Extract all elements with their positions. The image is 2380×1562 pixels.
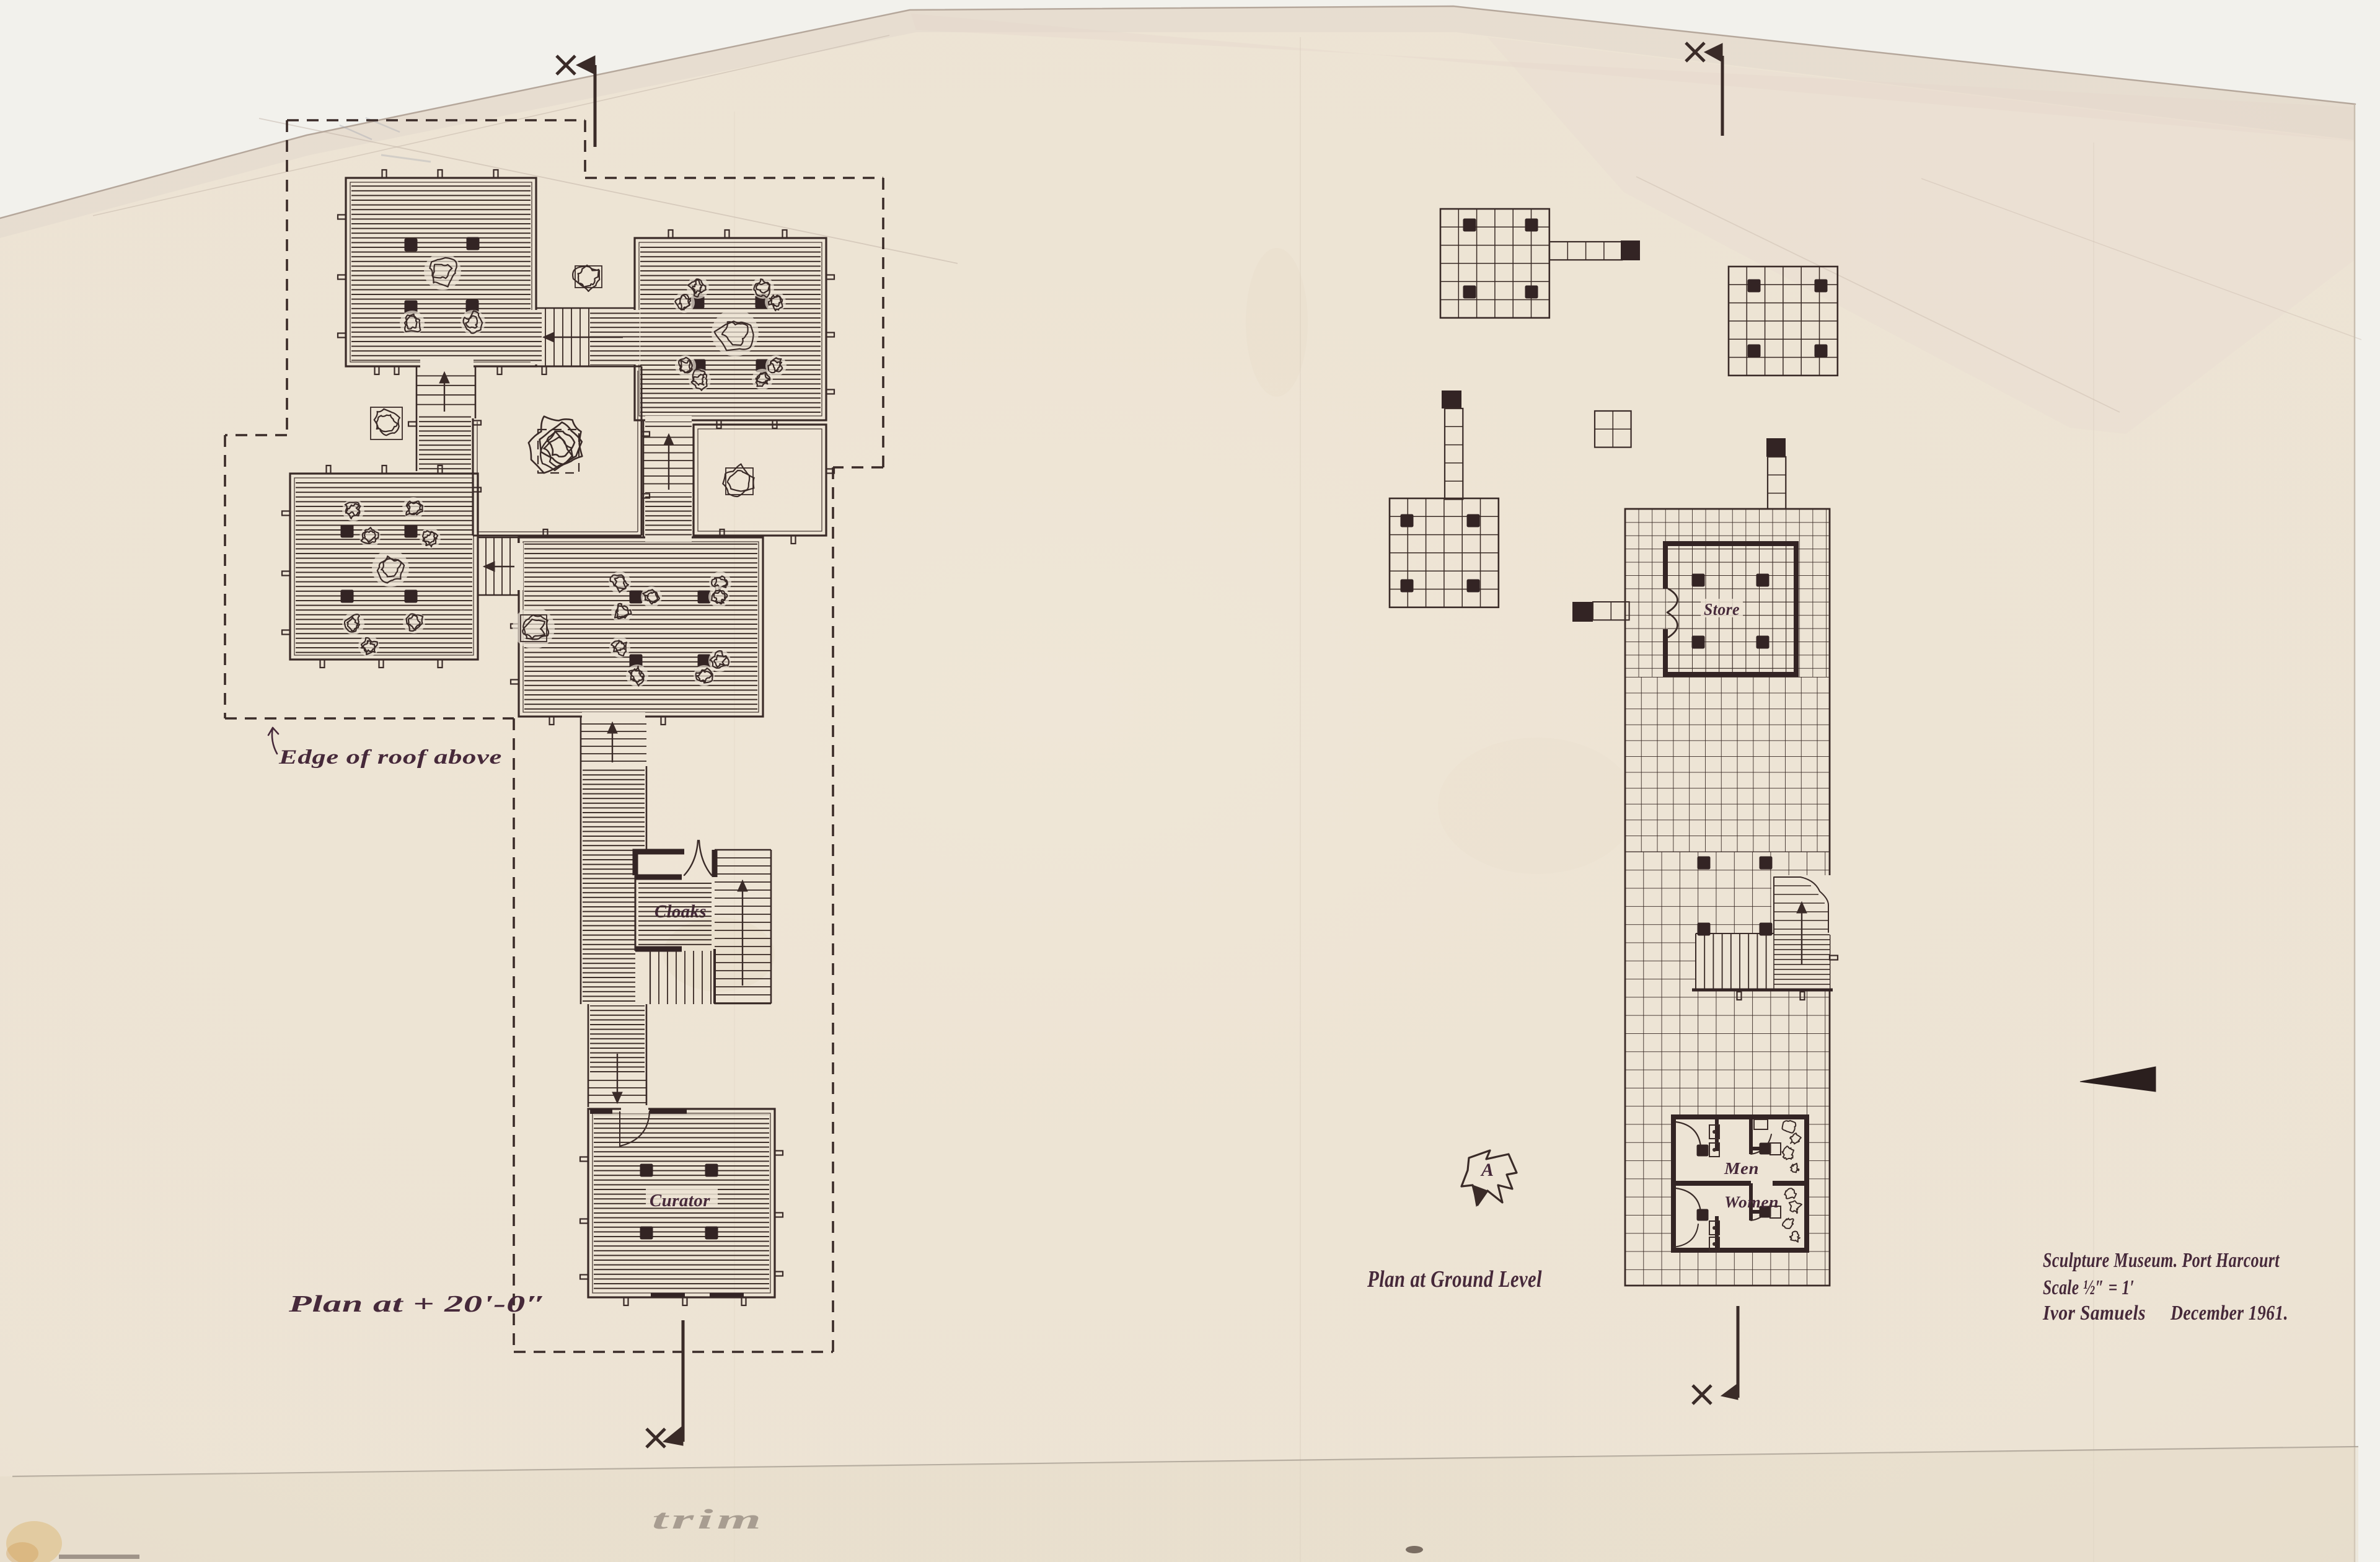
svg-text:Curator: Curator <box>650 1191 710 1211</box>
svg-text:December 1961.: December 1961. <box>2170 1302 2288 1325</box>
svg-text:Women: Women <box>1724 1193 1779 1211</box>
svg-text:Scale ½″ = 1′: Scale ½″ = 1′ <box>2043 1276 2135 1299</box>
svg-text:Plan at Ground Level: Plan at Ground Level <box>1367 1266 1542 1292</box>
svg-text:Ivor Samuels: Ivor Samuels <box>2042 1302 2146 1325</box>
svg-text:Sculpture Museum. Port Harcou: Sculpture Museum. Port Harcourt <box>2043 1249 2280 1272</box>
svg-text:trim: trim <box>652 1503 765 1535</box>
svg-text:A: A <box>1480 1160 1494 1180</box>
svg-text:Store: Store <box>1704 600 1740 619</box>
svg-text:Plan at + 20'-0″: Plan at + 20'-0″ <box>288 1291 547 1317</box>
svg-text:Edge of roof above: Edge of roof above <box>278 746 502 769</box>
svg-text:Men: Men <box>1724 1159 1759 1178</box>
